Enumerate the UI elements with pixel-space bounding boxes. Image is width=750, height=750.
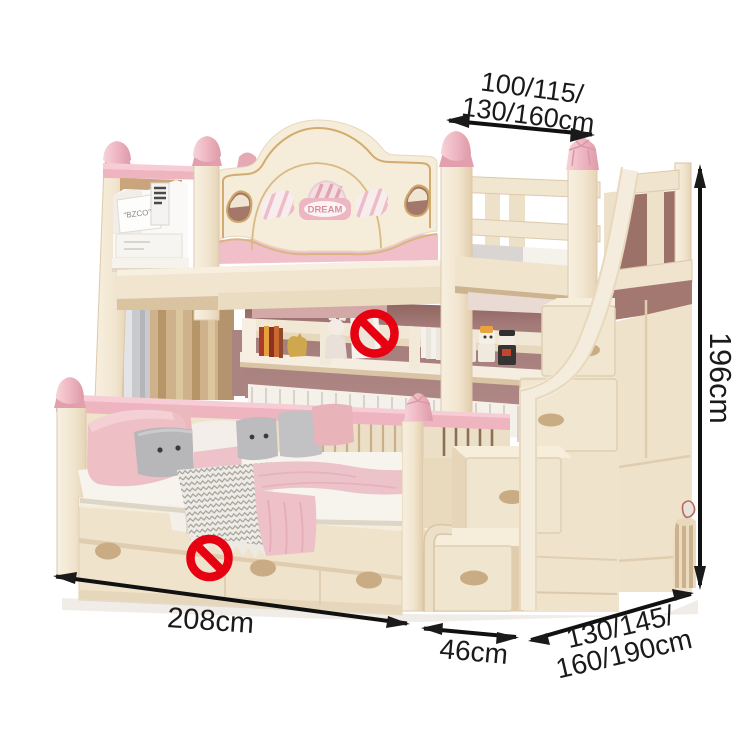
svg-text:196cm: 196cm — [703, 332, 737, 424]
svg-text:46cm: 46cm — [438, 633, 509, 670]
svg-text:208cm: 208cm — [166, 602, 255, 640]
svg-text:DREAM: DREAM — [308, 205, 343, 216]
